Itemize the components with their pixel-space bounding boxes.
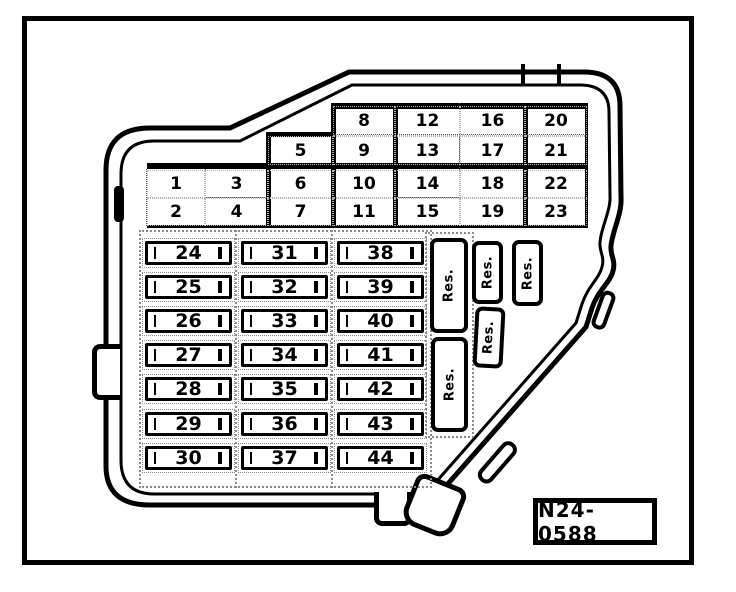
fuse-panel-diagram: 1 2 3 4 5 6 7 8 9 10 11 12 13 14 15 16 1…	[0, 0, 736, 592]
figure-border	[22, 16, 694, 565]
